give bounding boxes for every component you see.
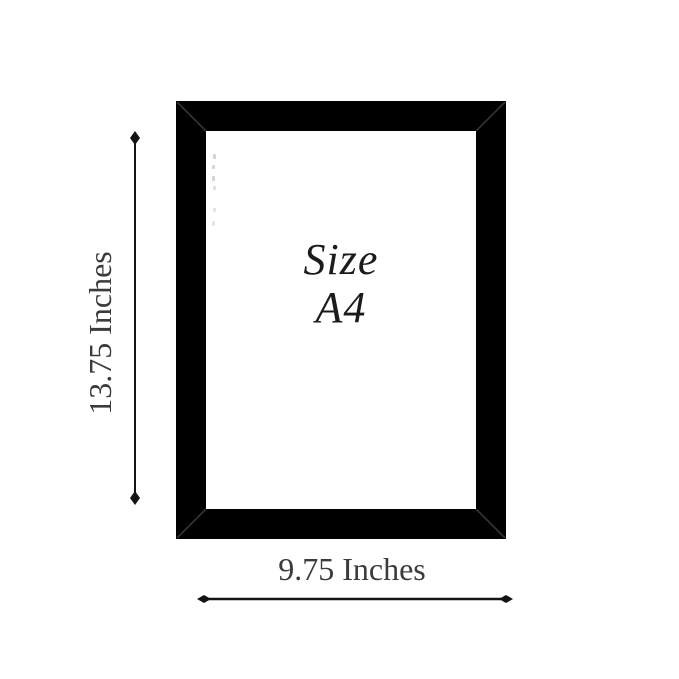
size-word: Size <box>176 236 506 284</box>
glass-reflection-mark <box>213 208 216 212</box>
size-value: A4 <box>176 284 506 332</box>
height-arrow-top-diamond <box>130 131 140 145</box>
width-dimension-label: 9.75 Inches <box>202 551 502 588</box>
glass-reflection-mark <box>213 154 216 159</box>
width-dimension-arrow <box>197 592 513 606</box>
height-dimension-label: 13.75 Inches <box>82 222 126 444</box>
glass-reflection-mark <box>212 221 215 226</box>
frame-size-text: Size A4 <box>176 236 506 332</box>
glass-reflection-mark <box>212 165 215 169</box>
width-arrow-left-diamond <box>197 595 211 603</box>
glass-reflection-mark <box>213 186 216 190</box>
height-dimension-arrow <box>128 131 142 505</box>
glass-reflection-mark <box>212 176 215 181</box>
height-arrow-bottom-diamond <box>130 491 140 505</box>
width-arrow-right-diamond <box>499 595 513 603</box>
product-dimension-diagram: Size A4 13.75 Inches 9.75 Inches <box>0 0 679 679</box>
